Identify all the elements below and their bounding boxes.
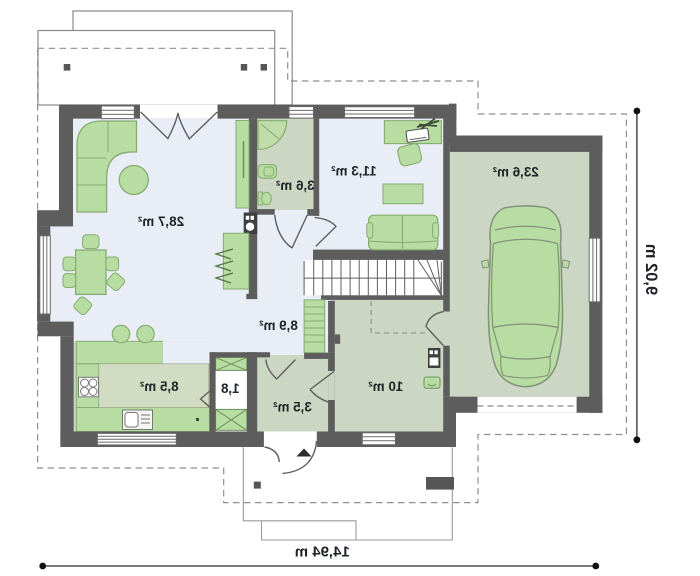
- svg-text:28,7 m²: 28,7 m²: [137, 214, 184, 229]
- svg-text:11,3 m²: 11,3 m²: [331, 164, 377, 179]
- svg-text:3,5 m²: 3,5 m²: [273, 400, 312, 415]
- svg-text:8,9 m²: 8,9 m²: [259, 318, 298, 333]
- svg-text:10 m²: 10 m²: [368, 379, 404, 394]
- svg-text:14,94 m: 14,94 m: [295, 544, 350, 561]
- svg-text:8,5 m²: 8,5 m²: [139, 379, 178, 394]
- svg-text:3,6 m²: 3,6 m²: [275, 178, 314, 193]
- svg-text:1,8: 1,8: [220, 381, 239, 396]
- svg-text:23,6 m²: 23,6 m²: [492, 164, 539, 179]
- svg-text:9,02 m: 9,02 m: [642, 244, 660, 295]
